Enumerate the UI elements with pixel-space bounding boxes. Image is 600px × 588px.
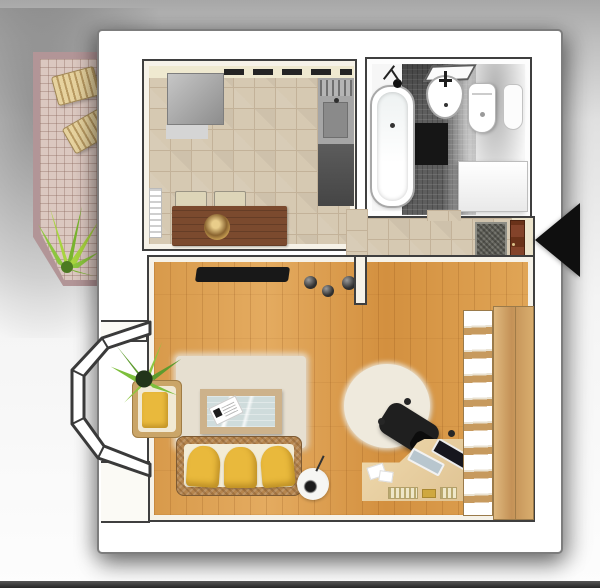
refrigerator [167, 73, 224, 125]
floor-lamp [297, 468, 329, 500]
tv [195, 267, 290, 282]
nav-arrow-left-icon[interactable] [535, 203, 580, 277]
living-room [147, 255, 535, 522]
bathroom-room [365, 57, 532, 218]
wooden-lounger [51, 66, 101, 106]
bay-window [58, 318, 154, 480]
kitchen-passage [346, 209, 368, 257]
sliding-doors [463, 310, 493, 516]
lamp-stem [315, 455, 324, 471]
basin-drain [444, 103, 448, 107]
coffee-table [200, 389, 282, 434]
scene [0, 0, 600, 588]
vase [322, 285, 334, 297]
kitchen-room [142, 59, 357, 251]
kitchen-floor [149, 66, 350, 244]
photo-card [97, 29, 563, 554]
counter-cabinet [318, 144, 354, 206]
bottom-bar [0, 581, 600, 588]
sofa-cushion [224, 447, 257, 488]
bathroom-floor [372, 64, 525, 211]
balcony-plant [36, 206, 100, 286]
washing-machine [458, 161, 528, 212]
sofa-cushion [186, 445, 222, 488]
keyboard [440, 487, 457, 499]
bathtub [370, 85, 415, 208]
keyboard [388, 487, 418, 499]
decor-bowl [204, 214, 230, 240]
desk-pad [422, 489, 436, 498]
tub-basin [377, 92, 408, 201]
papers [378, 470, 393, 483]
toilet [468, 83, 496, 133]
sofa [176, 436, 302, 496]
kitchen-sink-counter [318, 78, 354, 206]
bidet [503, 84, 523, 130]
radiator [149, 188, 162, 238]
wall [354, 255, 367, 305]
shower-head-icon [393, 79, 402, 88]
bathroom-doorway [427, 210, 461, 221]
shower-fixture [378, 64, 404, 90]
wardrobe [463, 306, 534, 520]
vase [304, 276, 317, 289]
living-room-floor [154, 262, 528, 515]
kitchen-sink [323, 102, 348, 138]
dining-table [172, 206, 287, 246]
bath-mat [414, 123, 448, 165]
hob-vents [224, 69, 352, 75]
wardrobe-side [493, 306, 534, 520]
magazine [208, 395, 243, 425]
